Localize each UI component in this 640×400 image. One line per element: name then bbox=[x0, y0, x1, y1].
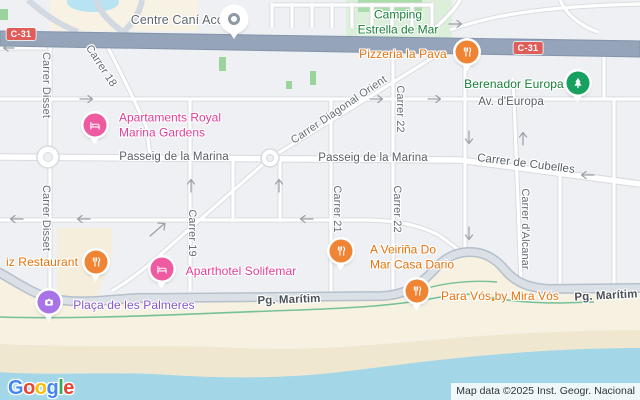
tree-icon bbox=[571, 76, 586, 91]
street-label-carrer-22-north: Carrer 22 bbox=[394, 85, 406, 132]
poi-label-line: Camping bbox=[358, 8, 439, 23]
poi-label-aparthotel-solifemar[interactable]: Aparthotel Solifemar bbox=[186, 264, 297, 278]
poi-label-placa-de-les-palmeres[interactable]: Plaça de les Palmeres bbox=[73, 298, 195, 312]
poi-pin-placa-de-les-palmeres[interactable] bbox=[38, 291, 61, 314]
logo-letter: G bbox=[8, 377, 23, 399]
poi-label-line: Mar Casa Dario bbox=[370, 257, 454, 272]
poi-label-para-vos-by-mira-vos[interactable]: Para Vós by Mira Vós bbox=[441, 289, 559, 303]
logo-letter: e bbox=[63, 377, 74, 399]
street-label-carrer-22-south: Carrer 22 bbox=[391, 185, 403, 232]
poi-label-a-veirina-do-mar-casa-dario[interactable]: A Veiriña Do Mar Casa Dario bbox=[370, 243, 454, 272]
street-label-carrer-dalcanar: Carrer d'Alcanar bbox=[519, 188, 531, 269]
poi-label-line: Estrella de Mar bbox=[358, 22, 439, 37]
street-label-carrer-21: Carrer 21 bbox=[331, 185, 343, 232]
fork-knife-icon bbox=[410, 284, 425, 299]
street-label-passeig-de-la-marina-west: Passeig de la Marina bbox=[119, 151, 228, 163]
logo-letter: g bbox=[47, 377, 59, 399]
logo-letter: o bbox=[23, 377, 35, 399]
road-shield-c31-right: C-31 bbox=[514, 42, 543, 54]
street-label-carrer-disset-south: Carrer Disset bbox=[40, 185, 52, 251]
street-label-passeig-de-la-marina-east: Passeig de la Marina bbox=[318, 152, 427, 164]
poi-pin-pizzeria-la-pava[interactable] bbox=[456, 41, 479, 64]
poi-label-camping-estrella-de-mar[interactable]: Camping Estrella de Mar bbox=[358, 8, 439, 37]
street-label-pg-maritim-center: Pg. Marítim bbox=[257, 293, 320, 307]
poi-label-line: A Veiriña Do bbox=[370, 243, 454, 258]
poi-label-line: Apartaments Royal bbox=[119, 111, 221, 126]
poi-label-pizzeria-la-pava[interactable]: Pizzeria la Pava bbox=[359, 47, 447, 61]
bed-icon bbox=[155, 262, 170, 277]
poi-label-berenador-europa[interactable]: Berenador Europa bbox=[464, 77, 564, 91]
street-label-carrer-19: Carrer 19 bbox=[186, 209, 198, 256]
poi-label-apartaments-royal-marina-gardens[interactable]: Apartaments Royal Marina Gardens bbox=[119, 111, 221, 140]
poi-label-iz-restaurant[interactable]: iz Restaurant bbox=[6, 255, 78, 269]
google-logo[interactable]: Google bbox=[8, 377, 74, 400]
fork-knife-icon bbox=[89, 255, 104, 270]
poi-pin-aparthotel-solifemar[interactable] bbox=[151, 258, 174, 281]
fork-knife-icon bbox=[460, 45, 475, 60]
poi-pin-apartaments-royal-marina-gardens[interactable] bbox=[84, 114, 107, 137]
bed-icon bbox=[88, 118, 103, 133]
road-shield-c31-left: C-31 bbox=[7, 28, 36, 40]
poi-pin-berenador-europa[interactable] bbox=[567, 72, 590, 95]
poi-pin-para-vos-by-mira-vos[interactable] bbox=[406, 280, 429, 303]
street-label-av-deuropa: Av. d'Europa bbox=[478, 96, 544, 108]
fork-knife-icon bbox=[334, 244, 349, 259]
map-canvas[interactable]: C-31 C-31 Passeig de la Marina Passeig d… bbox=[0, 0, 640, 400]
street-label-carrer-disset-north: Carrer Disset bbox=[40, 52, 52, 118]
poi-label-centre-cani-acc[interactable]: Centre Caní Acc bbox=[131, 13, 224, 27]
poi-pin-centre-cani-acc[interactable] bbox=[222, 7, 246, 31]
poi-label-line: Marina Gardens bbox=[119, 125, 221, 140]
poi-pin-iz-restaurant[interactable] bbox=[85, 251, 108, 274]
camera-icon bbox=[42, 295, 57, 310]
map-attribution: Map data ©2025 Inst. Geogr. Nacional bbox=[451, 383, 640, 400]
logo-letter: o bbox=[35, 377, 47, 399]
generic-poi-dot-icon bbox=[228, 13, 240, 25]
poi-pin-a-veirina-do-mar-casa-dario[interactable] bbox=[330, 240, 353, 263]
